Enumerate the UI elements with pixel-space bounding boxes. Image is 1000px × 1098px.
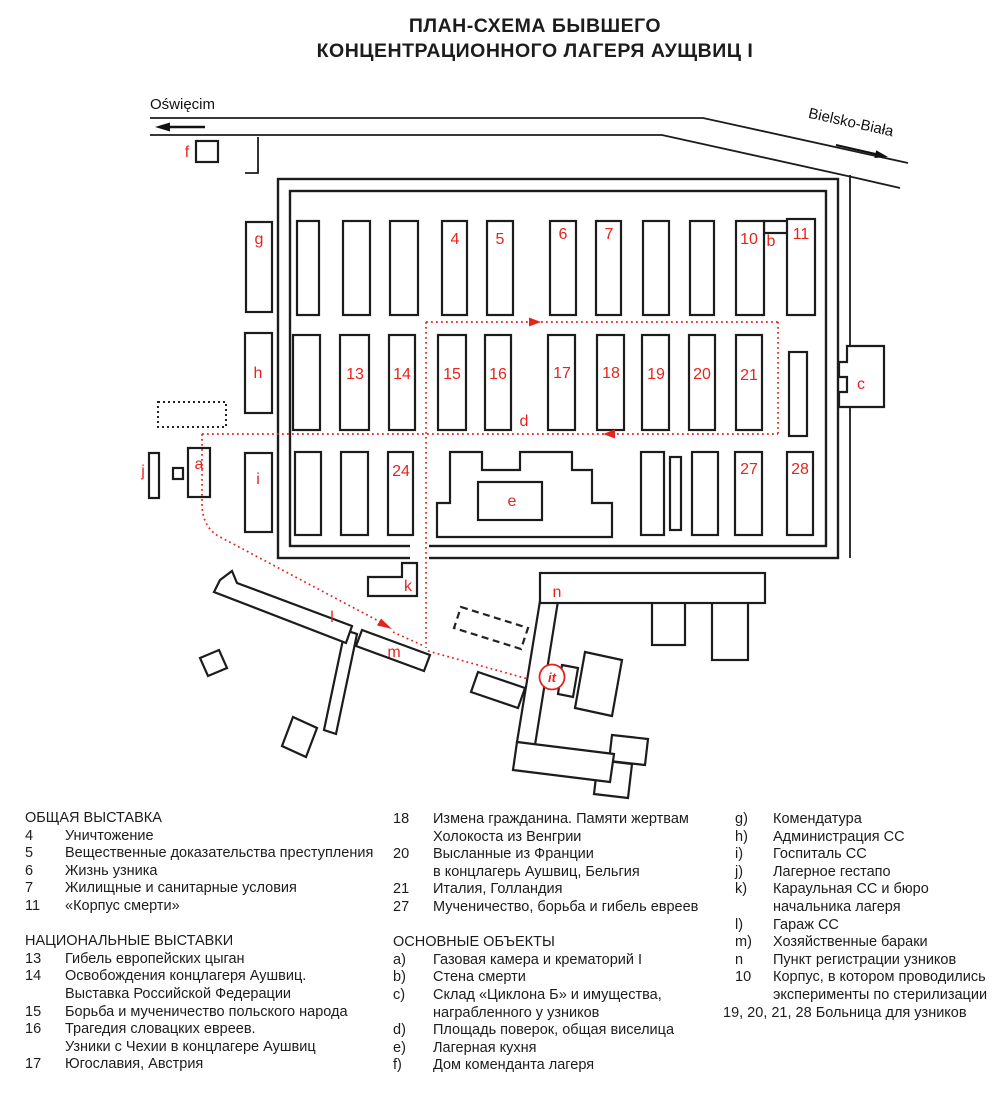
legend-row-number: [393, 829, 433, 847]
death-wall-b: [764, 221, 789, 233]
legend-row-number: 16: [25, 1021, 65, 1039]
legend-row-number: [25, 986, 65, 1004]
legend-row-text: Жилищные и санитарные условия: [65, 880, 297, 898]
legend-row: e) Лагерная кухня: [393, 1040, 723, 1058]
legend-row-text: Комендатура: [773, 811, 862, 829]
legend-row-text: Гибель европейских цыган: [65, 951, 245, 969]
small-building: [282, 717, 317, 757]
barrack: [692, 452, 718, 535]
label-7: 7: [605, 226, 614, 243]
legend-row-number: 18: [393, 811, 433, 829]
barrack: [641, 452, 664, 535]
legend-row: 16 Трагедия словацких евреев.: [25, 1021, 390, 1039]
legend-row: m) Хозяйственные бараки: [723, 934, 995, 952]
label-21: 21: [740, 367, 758, 384]
legend-row-text: НАЦИОНАЛЬНЫЕ ВЫСТАВКИ: [25, 933, 233, 951]
label-it: it: [548, 670, 557, 685]
legend-row: j) Лагерное гестапо: [723, 864, 995, 882]
legend-row-number: d): [393, 1022, 433, 1040]
route-arrow-diag-icon: [377, 619, 392, 630]
legend-row-text: Лагерная кухня: [433, 1040, 537, 1058]
label-g: g: [255, 231, 264, 248]
legend-row-number: a): [393, 952, 433, 970]
legend-row-number: c): [393, 987, 433, 1005]
legend-row-number: 20: [393, 846, 433, 864]
label-16: 16: [489, 366, 507, 383]
n-inner-building: [575, 652, 622, 716]
legend-row-number: 14: [25, 968, 65, 986]
legend-row-text: Жизнь узника: [65, 863, 157, 881]
legend-row-number: [723, 987, 773, 1005]
legend-row-number: [393, 1005, 433, 1023]
legend-row-number: j): [723, 864, 773, 882]
legend-row-number: [25, 1039, 65, 1057]
barrack: [670, 457, 681, 530]
label-5: 5: [496, 231, 505, 248]
legend-row: Выставка Российской Федерации: [25, 986, 390, 1004]
legend-column-3: g) Комендатура h) Администрация СС i) Го…: [723, 811, 995, 1022]
legend-row-number: n: [723, 952, 773, 970]
legend-row-number: f): [393, 1057, 433, 1075]
legend-row: 18 Измена гражданина. Памяти жертвам: [393, 811, 723, 829]
legend-row: 15 Борьба и мученичество польского народ…: [25, 1004, 390, 1022]
n-flange: [609, 735, 648, 765]
legend-row-text: Уничтожение: [65, 828, 154, 846]
route-arrow-right-icon: [529, 318, 541, 327]
legend-row: [25, 916, 390, 934]
legend-row-number: g): [723, 811, 773, 829]
label-k: k: [404, 578, 413, 595]
bielsko-arrow-icon: [836, 145, 888, 158]
small-building: [200, 650, 227, 676]
legend-row: g) Комендатура: [723, 811, 995, 829]
barrack: [341, 452, 368, 535]
plan-page: ПЛАН-СХЕМА БЫВШЕГО КОНЦЕНТРАЦИОННОГО ЛАГ…: [0, 0, 1000, 1098]
label-b: b: [767, 233, 776, 250]
legend-row-text: «Корпус смерти»: [65, 898, 180, 916]
legend-row-number: l): [723, 917, 773, 935]
legend-row-number: 15: [25, 1004, 65, 1022]
legend-row-number: 5: [25, 845, 65, 863]
legend-row: k) Караульная СС и бюро: [723, 881, 995, 899]
legend-row: НАЦИОНАЛЬНЫЕ ВЫСТАВКИ: [25, 933, 390, 951]
legend-row-number: [393, 864, 433, 882]
legend-row: начальника лагеря: [723, 899, 995, 917]
barracks-row-1: [246, 219, 815, 315]
legend-row-text: начальника лагеря: [773, 899, 901, 917]
legend-row-text: Хозяйственные бараки: [773, 934, 928, 952]
southwest-buildings: [200, 571, 528, 757]
legend-row-number: 17: [25, 1056, 65, 1074]
legend-row: 6 Жизнь узника: [25, 863, 390, 881]
dashed-building: [454, 607, 528, 649]
long-thin-building: [324, 630, 357, 734]
label-n: n: [553, 584, 562, 601]
legend-row-text: награбленного у узников: [433, 1005, 599, 1023]
legend-row: в концлагерь Аушвиц, Бельгия: [393, 864, 723, 882]
legend-row-text: Администрация СС: [773, 829, 905, 847]
legend-row-text: Площадь поверок, общая виселица: [433, 1022, 674, 1040]
label-17: 17: [553, 365, 571, 382]
label-e: e: [508, 493, 517, 510]
label-24: 24: [392, 463, 410, 480]
barrack: [390, 221, 418, 315]
building-j: [149, 453, 159, 498]
building-18: [597, 335, 624, 430]
legend-row: Холокоста из Венгрии: [393, 829, 723, 847]
label-6: 6: [559, 226, 568, 243]
title-line-1: ПЛАН-СХЕМА БЫВШЕГО: [0, 14, 1000, 39]
legend-row-number: 11: [25, 898, 65, 916]
camp-map: Oświęcim Bielsko-Biała: [0, 85, 1000, 800]
legend-row: эксперименты по стерилизации: [723, 987, 995, 1005]
label-f: f: [185, 144, 190, 161]
legend-column-2: 18 Измена гражданина. Памяти жертвам Хол…: [393, 811, 723, 1075]
legend-row: 13 Гибель европейских цыган: [25, 951, 390, 969]
legend-row-text: Гараж СС: [773, 917, 839, 935]
legend-row-number: 10: [723, 969, 773, 987]
legend-row-number: i): [723, 846, 773, 864]
legend-row-number: k): [723, 881, 773, 899]
legend-row: 11 «Корпус смерти»: [25, 898, 390, 916]
legend-column-1: ОБЩАЯ ВЫСТАВКА 4 Уничтожение 5 Веществен…: [25, 810, 390, 1074]
legend-row-number: 21: [393, 881, 433, 899]
label-j: j: [140, 463, 145, 480]
label-15: 15: [443, 366, 461, 383]
label-20: 20: [693, 366, 711, 383]
legend-row: 10 Корпус, в котором проводились: [723, 969, 995, 987]
legend-row-number: 6: [25, 863, 65, 881]
it-marker: it: [540, 665, 565, 690]
title-line-2: КОНЦЕНТРАЦИОННОГО ЛАГЕРЯ АУЩВИЦ I: [0, 39, 1000, 64]
legend-row-text: Италия, Голландия: [433, 881, 562, 899]
label-d: d: [520, 413, 529, 430]
building-l-garage: [214, 571, 352, 643]
building-f: [196, 141, 218, 162]
label-10: 10: [740, 231, 758, 248]
legend-row-number: h): [723, 829, 773, 847]
legend-row: 21 Италия, Голландия: [393, 881, 723, 899]
corner-line: [245, 137, 258, 173]
legend-row-text: Выставка Российской Федерации: [65, 986, 291, 1004]
legend-row: f) Дом коменданта лагеря: [393, 1057, 723, 1075]
legend-row-number: 13: [25, 951, 65, 969]
label-28: 28: [791, 461, 809, 478]
legend-row: d) Площадь поверок, общая виселица: [393, 1022, 723, 1040]
n-tooth: [652, 600, 685, 645]
legend-row-text: Трагедия словацких евреев.: [65, 1021, 256, 1039]
legend-row-text: 19, 20, 21, 28 Больница для узников: [723, 1005, 967, 1023]
small-building: [471, 672, 525, 708]
legend-row-number: m): [723, 934, 773, 952]
barrack: [293, 335, 320, 430]
legend-row-text: Пункт регистрации узников: [773, 952, 956, 970]
legend-row-text: Караульная СС и бюро: [773, 881, 929, 899]
label-4: 4: [451, 231, 460, 248]
legend-row-text: Склад «Циклона Б» и имущества,: [433, 987, 662, 1005]
barrack: [297, 221, 319, 315]
legend-row-text: Лагерное гестапо: [773, 864, 891, 882]
legend-row: 5 Вещественные доказательства преступлен…: [25, 845, 390, 863]
camp-map-svg: Oświęcim Bielsko-Biała: [0, 85, 1000, 800]
n-bar: [540, 573, 765, 603]
legend-row: 20 Высланные из Франции: [393, 846, 723, 864]
legend-row: c) Склад «Циклона Б» и имущества,: [393, 987, 723, 1005]
legend-row-text: Дом коменданта лагеря: [433, 1057, 594, 1075]
legend-row: b) Стена смерти: [393, 969, 723, 987]
legend-row-text: ОБЩАЯ ВЫСТАВКА: [25, 810, 162, 828]
legend-row-text: Освобождения концлагеря Аушвиц.: [65, 968, 306, 986]
legend-row-text: Холокоста из Венгрии: [433, 829, 581, 847]
road-label-oswiecim: Oświęcim: [150, 96, 215, 113]
legend-row: 17 Югославия, Австрия: [25, 1056, 390, 1074]
legend-row-text: Газовая камера и крематорий I: [433, 952, 642, 970]
barrack: [789, 352, 807, 436]
page-title: ПЛАН-СХЕМА БЫВШЕГО КОНЦЕНТРАЦИОННОГО ЛАГ…: [0, 14, 1000, 64]
label-a: a: [195, 456, 204, 473]
legend-row: 7 Жилищные и санитарные условия: [25, 880, 390, 898]
oswiecim-arrow-icon: [155, 123, 205, 132]
legend-row-text: в концлагерь Аушвиц, Бельгия: [433, 864, 640, 882]
barrack: [343, 221, 370, 315]
label-11: 11: [793, 226, 810, 243]
legend-row: [393, 917, 723, 935]
legend-row: n Пункт регистрации узников: [723, 952, 995, 970]
legend-row-number: 7: [25, 880, 65, 898]
legend-row: 27 Мученичество, борьба и гибель евреев: [393, 899, 723, 917]
barracks-row-3: [149, 448, 813, 537]
label-i: i: [256, 471, 260, 488]
legend-row-number: [723, 899, 773, 917]
label-c: c: [857, 376, 865, 393]
legend-row-number: 4: [25, 828, 65, 846]
legend-row-number: 27: [393, 899, 433, 917]
label-l: l: [330, 609, 334, 626]
legend-row: Узники с Чехии в концлагере Аушвиц: [25, 1039, 390, 1057]
legend-row-text: Борьба и мученичество польского народа: [65, 1004, 348, 1022]
n-bottom-wing: [513, 742, 614, 782]
legend-row-text: Мученичество, борьба и гибель евреев: [433, 899, 698, 917]
building-i: [245, 453, 272, 532]
dotted-building: [158, 402, 226, 427]
legend-row-number: b): [393, 969, 433, 987]
small-building: [173, 468, 183, 479]
legend-row-text: Вещественные доказательства преступления: [65, 845, 373, 863]
legend-row: h) Администрация СС: [723, 829, 995, 847]
label-m: m: [387, 644, 400, 661]
label-h: h: [254, 365, 263, 382]
label-18: 18: [602, 365, 620, 382]
legend-row-text: эксперименты по стерилизации: [773, 987, 987, 1005]
barrack: [295, 452, 321, 535]
barrack: [643, 221, 669, 315]
barrack: [690, 221, 714, 315]
building-17: [548, 335, 575, 430]
legend-row-text: Стена смерти: [433, 969, 526, 987]
n-tooth: [712, 600, 748, 660]
legend-row-text: Измена гражданина. Памяти жертвам: [433, 811, 689, 829]
label-14: 14: [393, 366, 411, 383]
legend-row: награбленного у узников: [393, 1005, 723, 1023]
legend-row: l) Гараж СС: [723, 917, 995, 935]
legend-row: i) Госпиталь СС: [723, 846, 995, 864]
legend-row: 19, 20, 21, 28 Больница для узников: [723, 1005, 995, 1023]
legend-row: ОСНОВНЫЕ ОБЪЕКТЫ: [393, 934, 723, 952]
legend-row-text: Югославия, Австрия: [65, 1056, 203, 1074]
legend-row: ОБЩАЯ ВЫСТАВКА: [25, 810, 390, 828]
legend-row-text: Узники с Чехии в концлагере Аушвиц: [65, 1039, 316, 1057]
legend-row: 14 Освобождения концлагеря Аушвиц.: [25, 968, 390, 986]
road-label-bielsko: Bielsko-Biała: [807, 105, 896, 141]
label-13: 13: [346, 366, 364, 383]
label-27: 27: [740, 461, 758, 478]
legend-row-text: Корпус, в котором проводились: [773, 969, 986, 987]
legend-row: 4 Уничтожение: [25, 828, 390, 846]
legend-row: a) Газовая камера и крематорий I: [393, 952, 723, 970]
label-19: 19: [647, 366, 665, 383]
legend-row-number: e): [393, 1040, 433, 1058]
legend-row-text: Высланные из Франции: [433, 846, 594, 864]
legend-row-text: Госпиталь СС: [773, 846, 867, 864]
legend-row-text: ОСНОВНЫЕ ОБЪЕКТЫ: [393, 934, 555, 952]
